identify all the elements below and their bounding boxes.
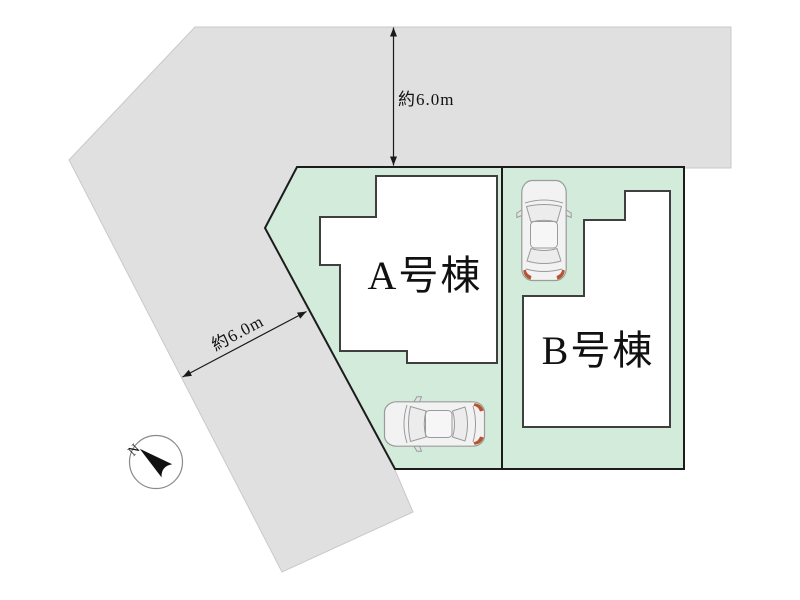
dimension-label-north-road: 約6.0m [398,90,454,109]
site-plan-canvas: A号棟 B号棟 約6.0m 約6.0m N [0,0,800,600]
car-icon-lot-a [385,397,485,451]
building-b-label: B号棟 [542,328,655,373]
site-plan-drawing: A号棟 B号棟 約6.0m 約6.0m N [0,0,800,600]
car-icon-lot-b [517,181,571,281]
building-a-label: A号棟 [368,253,483,298]
